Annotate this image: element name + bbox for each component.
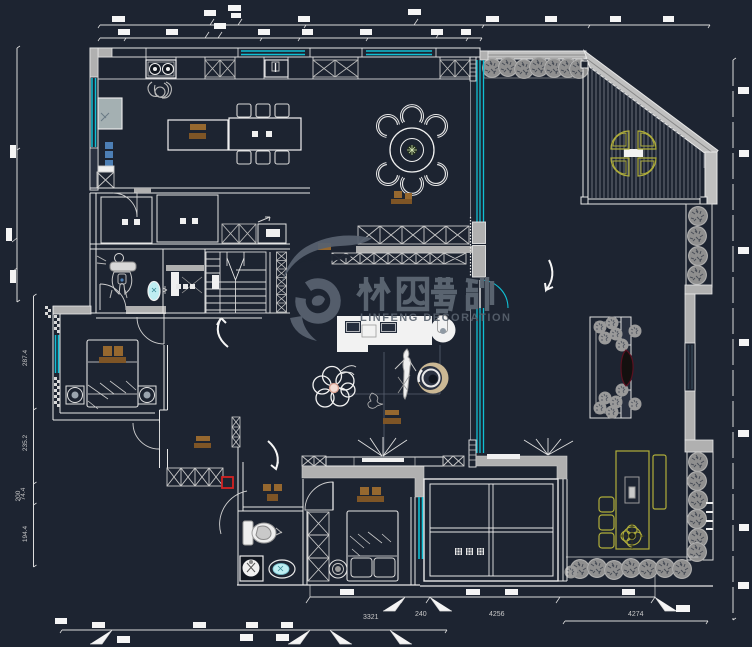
- svg-text:4274: 4274: [628, 611, 644, 618]
- svg-text:200: 200: [15, 490, 22, 501]
- svg-text:235.2: 235.2: [22, 434, 29, 451]
- svg-text:240: 240: [415, 611, 427, 618]
- svg-text:4256: 4256: [489, 611, 505, 618]
- svg-text:287.4: 287.4: [22, 349, 29, 366]
- svg-text:3321: 3321: [363, 614, 379, 621]
- svg-text:194.4: 194.4: [22, 525, 29, 542]
- svg-text:LINFENG DECORATION: LINFENG DECORATION: [360, 312, 511, 324]
